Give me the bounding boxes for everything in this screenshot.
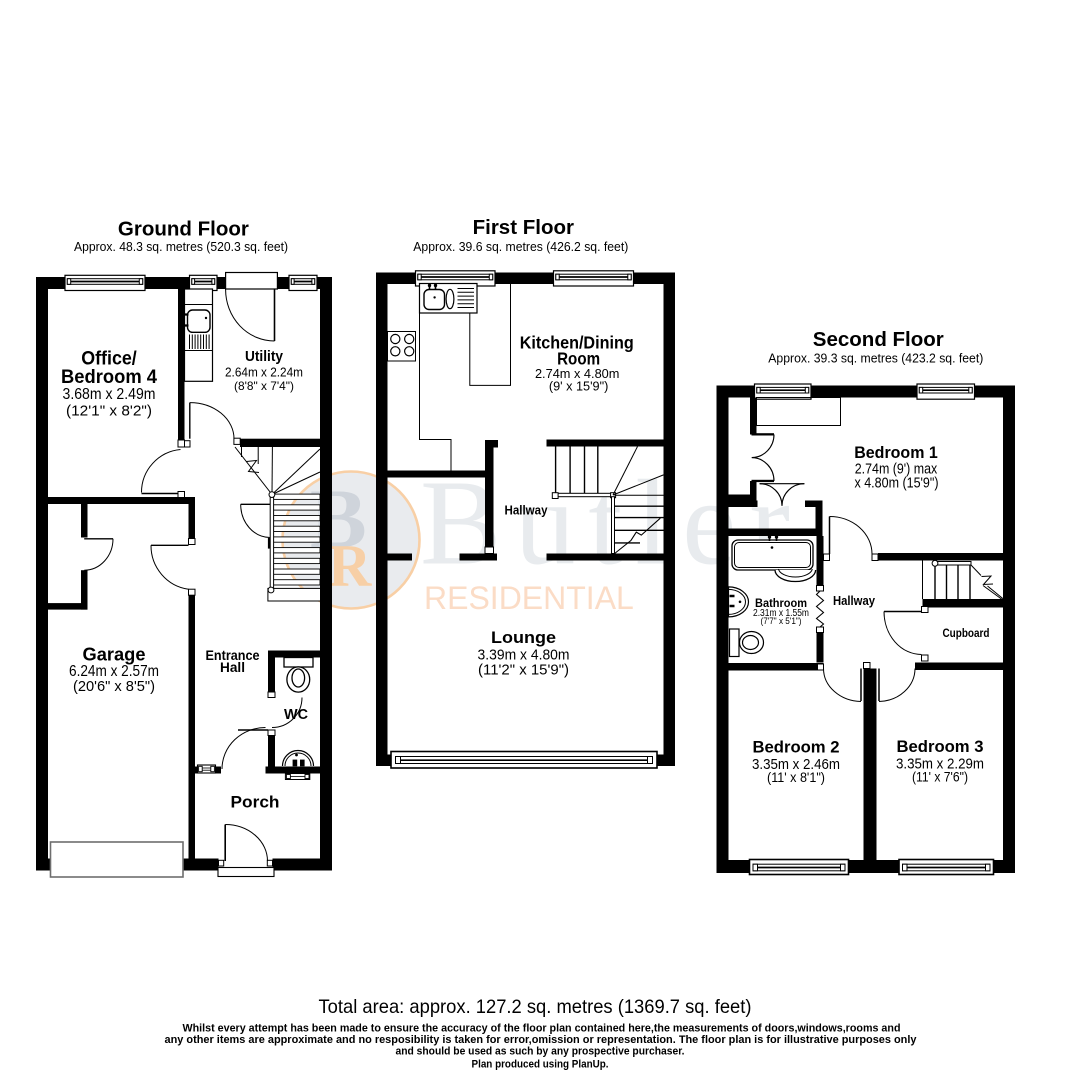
svg-text:Cupboard: Cupboard (943, 626, 990, 640)
svg-text:3.39m x 4.80m: 3.39m x 4.80m (478, 646, 570, 663)
svg-text:(20'6" x 8'5"): (20'6" x 8'5") (73, 678, 155, 695)
svg-text:(11' x 7'6"): (11' x 7'6") (912, 769, 968, 785)
svg-text:Second Floor: Second Floor (813, 328, 944, 351)
svg-text:Utility: Utility (245, 348, 284, 365)
svg-text:First Floor: First Floor (473, 216, 574, 239)
svg-text:(12'1" x 8'2"): (12'1" x 8'2") (66, 402, 152, 419)
svg-text:Approx. 39.3 sq. metres (423.2: Approx. 39.3 sq. metres (423.2 sq. feet) (768, 351, 983, 366)
svg-text:(8'8" x 7'4"): (8'8" x 7'4") (234, 379, 294, 393)
svg-text:3.68m x 2.49m: 3.68m x 2.49m (63, 386, 156, 403)
svg-text:Approx. 48.3 sq. metres (520.3: Approx. 48.3 sq. metres (520.3 sq. feet) (74, 239, 288, 254)
svg-text:(7'7" x 5'1"): (7'7" x 5'1") (761, 616, 802, 627)
svg-text:Total area: approx. 127.2 sq.: Total area: approx. 127.2 sq. metres (13… (319, 996, 752, 1018)
svg-text:x 4.80m (15'9"): x 4.80m (15'9") (855, 474, 939, 491)
svg-text:Approx. 39.6 sq. metres (426.2: Approx. 39.6 sq. metres (426.2 sq. feet) (413, 239, 628, 254)
svg-text:R: R (328, 533, 372, 599)
svg-text:(11' x 8'1"): (11' x 8'1") (767, 769, 825, 785)
svg-text:Bedroom 1: Bedroom 1 (854, 443, 938, 462)
svg-text:2.64m x 2.24m: 2.64m x 2.24m (225, 366, 303, 380)
svg-text:WC: WC (284, 707, 309, 723)
svg-text:Lounge: Lounge (491, 629, 556, 647)
svg-text:Hallway: Hallway (505, 504, 548, 518)
svg-text:Whilst every attempt has been: Whilst every attempt has been made to en… (183, 1023, 901, 1035)
svg-text:Bedroom 3: Bedroom 3 (897, 737, 984, 756)
svg-text:Porch: Porch (231, 793, 280, 811)
svg-text:Bedroom 2: Bedroom 2 (753, 738, 840, 757)
svg-text:RESIDENTIAL: RESIDENTIAL (424, 580, 634, 616)
svg-text:Bedroom 4: Bedroom 4 (61, 367, 157, 388)
svg-text:and should be used as such by: and should be used as such by any prospe… (396, 1046, 685, 1058)
svg-text:(9' x 15'9"): (9' x 15'9") (549, 379, 609, 393)
svg-text:Hallway: Hallway (833, 594, 875, 608)
svg-text:any other items are approximat: any other items are approximate and no r… (165, 1034, 918, 1046)
svg-text:Ground Floor: Ground Floor (118, 218, 249, 241)
svg-text:Hall: Hall (220, 659, 245, 675)
svg-text:Plan produced using PlanUp.: Plan produced using PlanUp. (472, 1059, 609, 1071)
svg-text:(11'2" x 15'9"): (11'2" x 15'9") (478, 662, 569, 678)
svg-text:Garage: Garage (83, 644, 146, 664)
